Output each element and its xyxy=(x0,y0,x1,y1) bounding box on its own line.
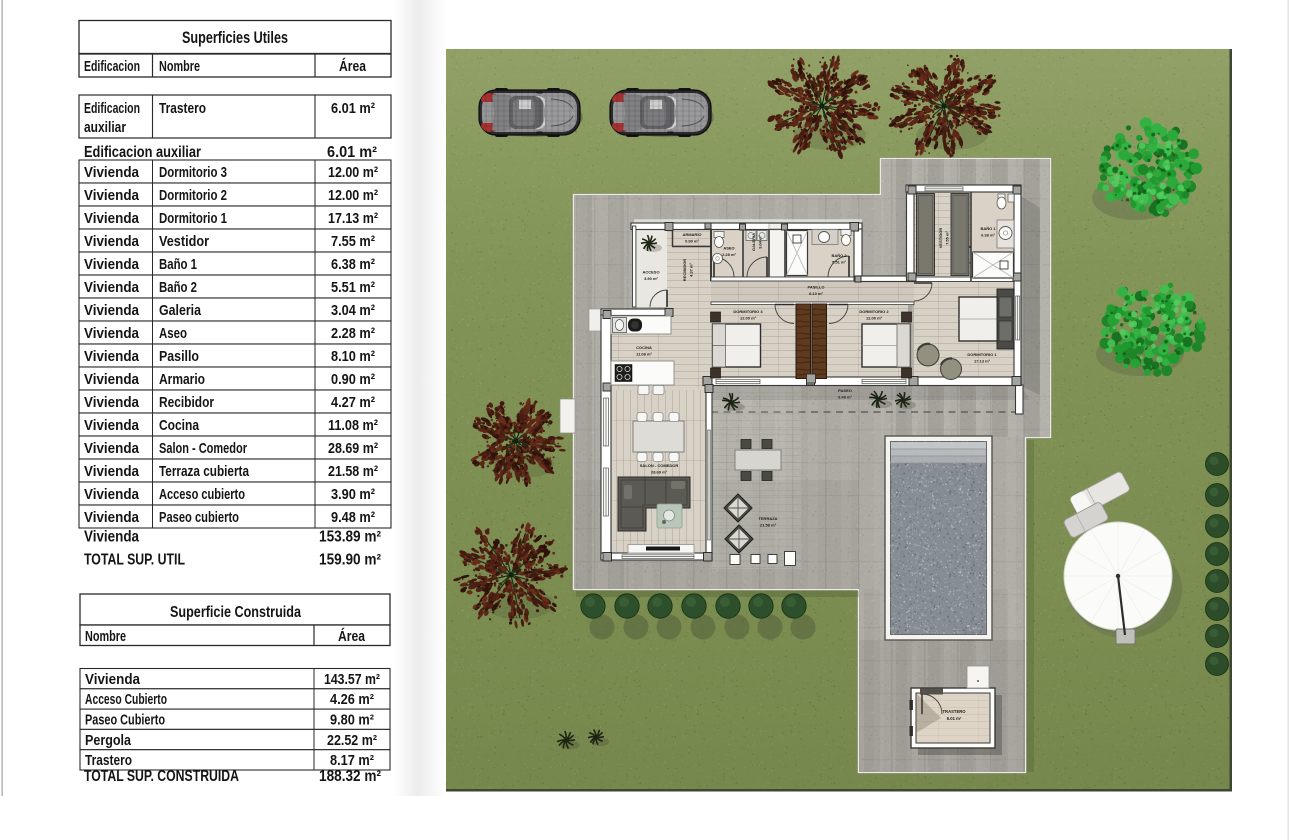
svg-text:Edificacion: Edificacion xyxy=(84,58,140,75)
svg-text:Dormitorio 3: Dormitorio 3 xyxy=(159,164,227,181)
svg-text:Paseo cubierto: Paseo cubierto xyxy=(159,509,239,526)
svg-text:Galeria: Galeria xyxy=(159,302,202,319)
svg-text:Pergola: Pergola xyxy=(85,733,132,749)
svg-text:Terraza cubierta: Terraza cubierta xyxy=(159,463,250,480)
svg-text:Trastero: Trastero xyxy=(85,753,132,769)
svg-text:0.90 m²: 0.90 m² xyxy=(685,239,699,244)
svg-text:159.90 m²: 159.90 m² xyxy=(319,552,381,569)
svg-text:17.13 m²: 17.13 m² xyxy=(974,359,991,364)
svg-text:Salon - Comedor: Salon - Comedor xyxy=(159,440,247,457)
svg-text:Vestidor: Vestidor xyxy=(159,233,209,250)
svg-text:Acceso cubierto: Acceso cubierto xyxy=(159,486,245,503)
svg-text:8.10 m²: 8.10 m² xyxy=(331,348,375,365)
svg-text:0.90 m²: 0.90 m² xyxy=(331,371,375,388)
svg-text:DORMITORIO 1: DORMITORIO 1 xyxy=(967,352,997,357)
svg-text:Acceso Cubierto: Acceso Cubierto xyxy=(85,692,167,708)
svg-text:12.00 m²: 12.00 m² xyxy=(328,164,378,181)
svg-text:COCINA: COCINA xyxy=(636,345,652,350)
svg-text:Vivienda: Vivienda xyxy=(84,394,140,411)
svg-text:6.01 m²: 6.01 m² xyxy=(327,144,377,161)
svg-text:Baño 2: Baño 2 xyxy=(159,279,197,296)
svg-text:11.08 m²: 11.08 m² xyxy=(328,417,378,434)
svg-text:8.17 m²: 8.17 m² xyxy=(330,753,374,769)
svg-text:PASILLO: PASILLO xyxy=(807,285,824,290)
svg-text:6.01 m²: 6.01 m² xyxy=(947,716,962,721)
svg-text:28.69 m²: 28.69 m² xyxy=(651,470,668,475)
svg-text:RECIBIDOR: RECIBIDOR xyxy=(682,259,687,282)
svg-text:9.48 m²: 9.48 m² xyxy=(838,395,852,400)
svg-text:17.13 m²: 17.13 m² xyxy=(328,210,378,227)
svg-text:12.00 m²: 12.00 m² xyxy=(866,316,883,321)
svg-text:Vivienda: Vivienda xyxy=(84,279,140,296)
svg-text:5.51 m²: 5.51 m² xyxy=(832,260,846,265)
svg-text:ARMARIO: ARMARIO xyxy=(682,232,701,237)
svg-text:ASEO: ASEO xyxy=(723,246,734,251)
svg-text:21.58 m²: 21.58 m² xyxy=(328,463,378,480)
svg-text:BAÑO 2: BAÑO 2 xyxy=(831,253,847,258)
svg-text:22.52 m²: 22.52 m² xyxy=(327,733,377,749)
svg-text:TRASTERO: TRASTERO xyxy=(942,709,966,714)
svg-text:4.26 m²: 4.26 m² xyxy=(330,692,374,708)
svg-text:Nombre: Nombre xyxy=(159,58,200,75)
svg-text:Recibidor: Recibidor xyxy=(159,394,214,411)
svg-text:Paseo Cubierto: Paseo Cubierto xyxy=(85,713,165,729)
svg-text:Vivienda: Vivienda xyxy=(84,302,140,319)
svg-text:3.04 m²: 3.04 m² xyxy=(758,234,763,248)
svg-text:3.90 m²: 3.90 m² xyxy=(644,276,658,281)
svg-text:Baño 1: Baño 1 xyxy=(159,256,197,273)
svg-text:Cocina: Cocina xyxy=(159,417,200,434)
svg-text:12.00 m²: 12.00 m² xyxy=(328,187,378,204)
svg-text:Dormitorio 2: Dormitorio 2 xyxy=(159,187,227,204)
svg-text:Vivienda: Vivienda xyxy=(84,509,140,526)
svg-text:Superficie Construida: Superficie Construida xyxy=(170,604,301,621)
svg-text:6.38 m²: 6.38 m² xyxy=(331,256,375,273)
svg-text:21.58 m²: 21.58 m² xyxy=(760,523,777,528)
svg-text:Área: Área xyxy=(339,58,367,75)
svg-text:188.32 m²: 188.32 m² xyxy=(319,768,381,785)
svg-text:Vivienda: Vivienda xyxy=(84,348,140,365)
svg-text:7.55 m²: 7.55 m² xyxy=(331,233,375,250)
svg-text:2.28 m²: 2.28 m² xyxy=(331,325,375,342)
svg-text:12.00 m²: 12.00 m² xyxy=(740,316,757,321)
svg-text:TERRAZA: TERRAZA xyxy=(758,516,777,521)
svg-text:Vivienda: Vivienda xyxy=(84,486,140,503)
svg-text:DORMITORIO 3: DORMITORIO 3 xyxy=(733,309,763,314)
svg-text:Vivienda: Vivienda xyxy=(84,164,140,181)
svg-text:8.10 m²: 8.10 m² xyxy=(809,291,823,296)
svg-text:TOTAL SUP. CONSTRUIDA: TOTAL SUP. CONSTRUIDA xyxy=(84,768,239,785)
svg-text:Edificacion: Edificacion xyxy=(84,100,140,117)
svg-text:3.04 m²: 3.04 m² xyxy=(331,302,375,319)
svg-text:Área: Área xyxy=(338,628,366,645)
svg-text:Dormitorio 1: Dormitorio 1 xyxy=(159,210,227,227)
svg-text:5.51 m²: 5.51 m² xyxy=(331,279,375,296)
svg-text:7.55 m²: 7.55 m² xyxy=(945,230,950,244)
svg-text:Vivienda: Vivienda xyxy=(84,187,140,204)
svg-text:Vivienda: Vivienda xyxy=(84,256,140,273)
svg-text:4.37 m²: 4.37 m² xyxy=(689,262,694,276)
svg-text:TOTAL SUP. UTIL: TOTAL SUP. UTIL xyxy=(84,552,185,569)
svg-text:Edificacion auxiliar: Edificacion auxiliar xyxy=(84,144,201,161)
svg-text:6.38 m²: 6.38 m² xyxy=(981,233,995,238)
svg-text:Vivienda: Vivienda xyxy=(84,325,140,342)
svg-text:Vivienda: Vivienda xyxy=(84,417,140,434)
svg-text:GALERIA: GALERIA xyxy=(751,233,756,251)
svg-text:SALON - COMEDOR: SALON - COMEDOR xyxy=(640,463,679,468)
svg-text:Trastero: Trastero xyxy=(159,100,206,117)
svg-text:4.27 m²: 4.27 m² xyxy=(331,394,375,411)
svg-text:Vivienda: Vivienda xyxy=(85,672,141,688)
svg-text:BAÑO 1: BAÑO 1 xyxy=(980,226,996,231)
svg-text:Aseo: Aseo xyxy=(159,325,187,342)
svg-text:9.48 m²: 9.48 m² xyxy=(331,509,375,526)
svg-text:VESTIDOR: VESTIDOR xyxy=(938,228,943,249)
svg-text:Vivienda: Vivienda xyxy=(84,529,139,546)
svg-text:Armario: Armario xyxy=(159,371,205,388)
svg-text:143.57 m²: 143.57 m² xyxy=(324,672,380,688)
svg-text:DORMITORIO 2: DORMITORIO 2 xyxy=(859,309,889,314)
svg-text:9.80 m²: 9.80 m² xyxy=(330,713,374,729)
svg-text:PASEO: PASEO xyxy=(838,388,852,393)
svg-text:ACCESO: ACCESO xyxy=(642,270,659,275)
svg-text:Superficies Utiles: Superficies Utiles xyxy=(182,29,288,47)
svg-text:auxiliar: auxiliar xyxy=(84,119,126,136)
svg-text:Vivienda: Vivienda xyxy=(84,233,140,250)
svg-text:2.28 m²: 2.28 m² xyxy=(722,252,736,257)
svg-text:Vivienda: Vivienda xyxy=(84,371,140,388)
svg-text:6.01 m²: 6.01 m² xyxy=(331,100,375,117)
svg-text:3.90 m²: 3.90 m² xyxy=(331,486,375,503)
svg-text:Pasillo: Pasillo xyxy=(159,348,199,365)
svg-text:Nombre: Nombre xyxy=(85,628,126,645)
svg-text:11.08 m²: 11.08 m² xyxy=(636,352,652,357)
svg-text:Vivienda: Vivienda xyxy=(84,463,140,480)
svg-text:28.69 m²: 28.69 m² xyxy=(328,440,378,457)
svg-text:153.89 m²: 153.89 m² xyxy=(319,529,381,546)
svg-text:Vivienda: Vivienda xyxy=(84,440,140,457)
svg-text:Vivienda: Vivienda xyxy=(84,210,140,227)
